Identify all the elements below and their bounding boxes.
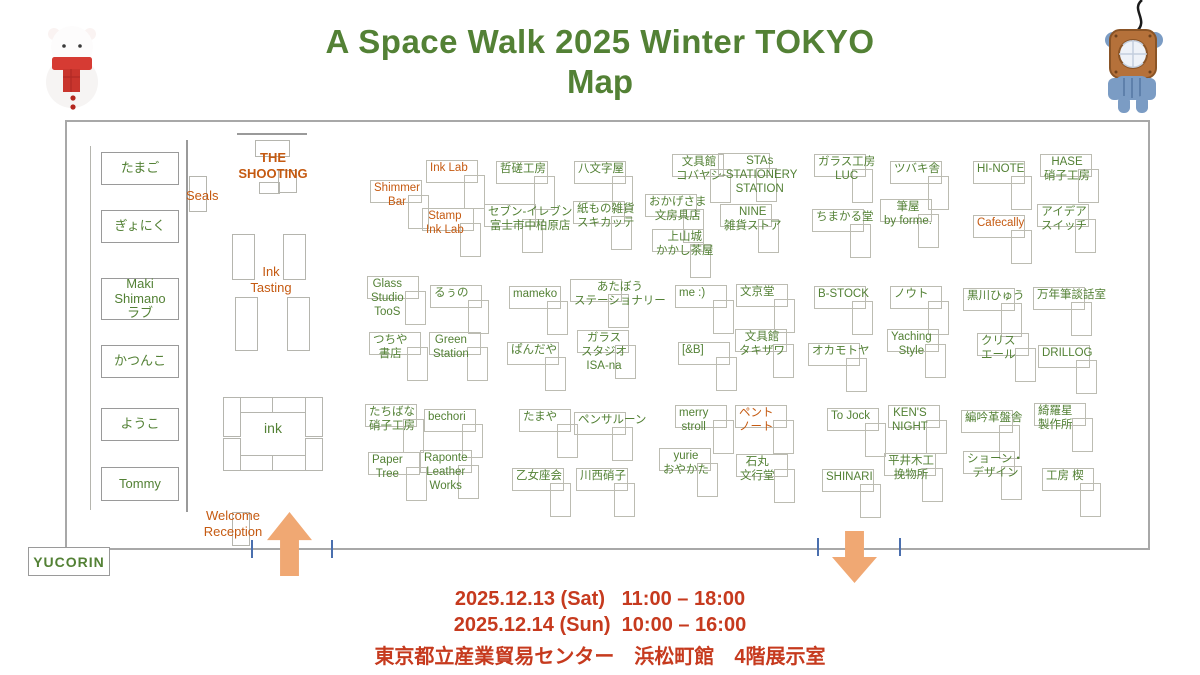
snowman-bear-mascot-icon bbox=[40, 16, 104, 112]
booth-label: 八文字屋 bbox=[578, 163, 624, 177]
left-column-booth: Maki Shimano ラブ bbox=[101, 278, 179, 320]
event-date-sunday: 2025.12.14 (Sun) 10:00 – 16:00 bbox=[0, 614, 1200, 637]
booth-label: ツバキ舎 bbox=[894, 163, 940, 177]
booth-label: Glass Studio TooS bbox=[371, 278, 404, 319]
door-tick-mark bbox=[899, 538, 901, 556]
booth-label: Raponte Leather Works bbox=[424, 452, 467, 493]
ink-table-rect bbox=[272, 455, 306, 471]
booth-label-the-shooting: THE SHOOTING bbox=[228, 150, 318, 181]
booth-label: 筆屋 by forme. bbox=[884, 201, 932, 229]
booth-label: Ink Lab bbox=[430, 162, 468, 176]
yucorin-booth: YUCORIN bbox=[28, 547, 110, 576]
left-column-booth: ぎょにく bbox=[101, 210, 179, 243]
booth-label: B-STOCK bbox=[818, 288, 869, 302]
booth-label: ガラス スタジオ ISA-na bbox=[581, 332, 627, 373]
booth-label: 乙女座会 bbox=[516, 470, 562, 484]
booth-label-ink: ink bbox=[252, 420, 294, 437]
left-column-bracket-line bbox=[90, 146, 91, 510]
booth-label: 川西硝子 bbox=[580, 470, 626, 484]
booth-label: たちばな 硝子工房 bbox=[369, 406, 415, 434]
booth-label: Stamp Ink Lab bbox=[426, 210, 464, 238]
booth-label: るぅの bbox=[434, 287, 469, 301]
door-tick-mark bbox=[251, 540, 253, 558]
booth-label-seals: Seals bbox=[186, 188, 219, 204]
door-tick-mark bbox=[817, 538, 819, 556]
booth-label: おかげさま 文房具店 bbox=[649, 196, 707, 224]
booth-label: HI-NOTE bbox=[977, 163, 1024, 177]
left-column-booth: ようこ bbox=[101, 408, 179, 441]
booth-label: Cafecally bbox=[977, 217, 1024, 231]
booth-label: 哲磋工房 bbox=[500, 163, 546, 177]
booth-label: yurie おやかた bbox=[663, 450, 709, 478]
booth-label: ちまかる堂 bbox=[816, 211, 874, 225]
shooting-wall-line bbox=[237, 133, 307, 135]
ink-tasting-table bbox=[287, 297, 310, 351]
ink-table-rect bbox=[223, 438, 241, 471]
booth-label: 石丸 文行堂 bbox=[740, 456, 775, 484]
left-column-booth: かつんこ bbox=[101, 345, 179, 378]
left-column-booth: たまご bbox=[101, 152, 179, 185]
booth-label-ink-tasting: Ink Tasting bbox=[240, 264, 302, 295]
booth-label: クリス エール bbox=[981, 335, 1016, 363]
diver-bear-mascot-icon bbox=[1096, 0, 1168, 114]
booth-label: KEN'S NIGHT bbox=[892, 407, 928, 435]
booth-label: mameko bbox=[513, 288, 557, 302]
booth-label: たまや bbox=[523, 411, 557, 425]
booth-label: 工房 楔 bbox=[1046, 470, 1084, 484]
page-title: A Space Walk 2025 Winter TOKYO Map bbox=[0, 22, 1200, 103]
ink-table-rect bbox=[305, 397, 323, 437]
booth-label: アイデア スイッチ bbox=[1041, 206, 1087, 234]
booth-label: merry stroll bbox=[679, 407, 708, 435]
event-map-page: A Space Walk 2025 Winter TOKYO Map たまごぎょ… bbox=[0, 0, 1200, 675]
booth-label: 文具館 コバヤシ bbox=[676, 156, 722, 184]
booth-label: 編吟革盤舎 bbox=[965, 412, 1023, 426]
booth-label: 平井木工 挽物所 bbox=[888, 455, 934, 483]
booth-label: me :) bbox=[679, 287, 705, 301]
left-column-booth: Tommy bbox=[101, 467, 179, 501]
booth-label: Green Station bbox=[433, 334, 469, 362]
booth-label: DRILLOG bbox=[1042, 347, 1093, 361]
booth-label: 文具館 タキザワ bbox=[739, 331, 785, 359]
booth-label: Shimmer Bar bbox=[374, 182, 420, 210]
booth-label: Paper Tree bbox=[372, 454, 403, 482]
booth-label: HASE 硝子工房 bbox=[1044, 156, 1090, 184]
page-title-line2: Map bbox=[0, 62, 1200, 102]
booth-label: ペンサルーン bbox=[578, 414, 646, 428]
booth-label: NINE 雑貨ストア bbox=[724, 206, 782, 234]
booth-label: あたぼう ステーショナリー bbox=[574, 281, 666, 309]
booth-label: ペント ノート bbox=[739, 407, 774, 435]
booth-label: 紙もの雑貨 スキカッテ bbox=[577, 203, 635, 231]
welcome-reception-label: Welcome Reception bbox=[200, 508, 266, 539]
booth-label: SHINARI bbox=[826, 471, 873, 485]
ink-table-rect bbox=[272, 397, 306, 413]
yucorin-label: YUCORIN bbox=[33, 554, 105, 570]
booth-label: オカモトヤ bbox=[812, 345, 870, 359]
booth-label: [&B] bbox=[682, 344, 704, 358]
page-title-line1: A Space Walk 2025 Winter TOKYO bbox=[0, 22, 1200, 62]
event-venue: 東京都立産業貿易センター 浜松町館 4階展示室 bbox=[0, 640, 1200, 669]
event-date-saturday: 2025.12.13 (Sat) 11:00 – 18:00 bbox=[0, 588, 1200, 611]
ink-table-rect bbox=[240, 455, 273, 471]
booth-label: ぱんだや bbox=[511, 344, 557, 358]
booth-label: 上山城 かかし茶屋 bbox=[656, 231, 714, 259]
booth-label: ノウト bbox=[894, 288, 929, 302]
ink-table-rect bbox=[305, 438, 323, 471]
shooting-rect bbox=[259, 182, 280, 194]
booth-label: bechori bbox=[428, 411, 466, 425]
ink-table-rect bbox=[223, 397, 241, 437]
booth-label: 綺羅星 製作所 bbox=[1038, 405, 1073, 433]
booth-label: 黒川ひゅう bbox=[967, 290, 1025, 304]
booth-label: STAs -STATIONERY STATION bbox=[722, 155, 797, 196]
booth-label: つちや 書店 bbox=[373, 334, 408, 362]
booth-label: セブン‐イレブン 富士市中柏原店 bbox=[488, 206, 572, 234]
booth-label: ガラス工房 LUC bbox=[818, 156, 875, 184]
booth-label: 文京堂 bbox=[740, 286, 775, 300]
ink-tasting-table bbox=[235, 297, 258, 351]
booth-label: ショーン・ デザイン bbox=[967, 453, 1024, 481]
booth-label: To Jock bbox=[831, 410, 870, 424]
ink-table-rect bbox=[240, 397, 273, 413]
booth-label: 万年筆談話室 bbox=[1037, 289, 1106, 303]
booth-label: Yaching Style bbox=[891, 331, 932, 359]
door-tick-mark bbox=[331, 540, 333, 558]
